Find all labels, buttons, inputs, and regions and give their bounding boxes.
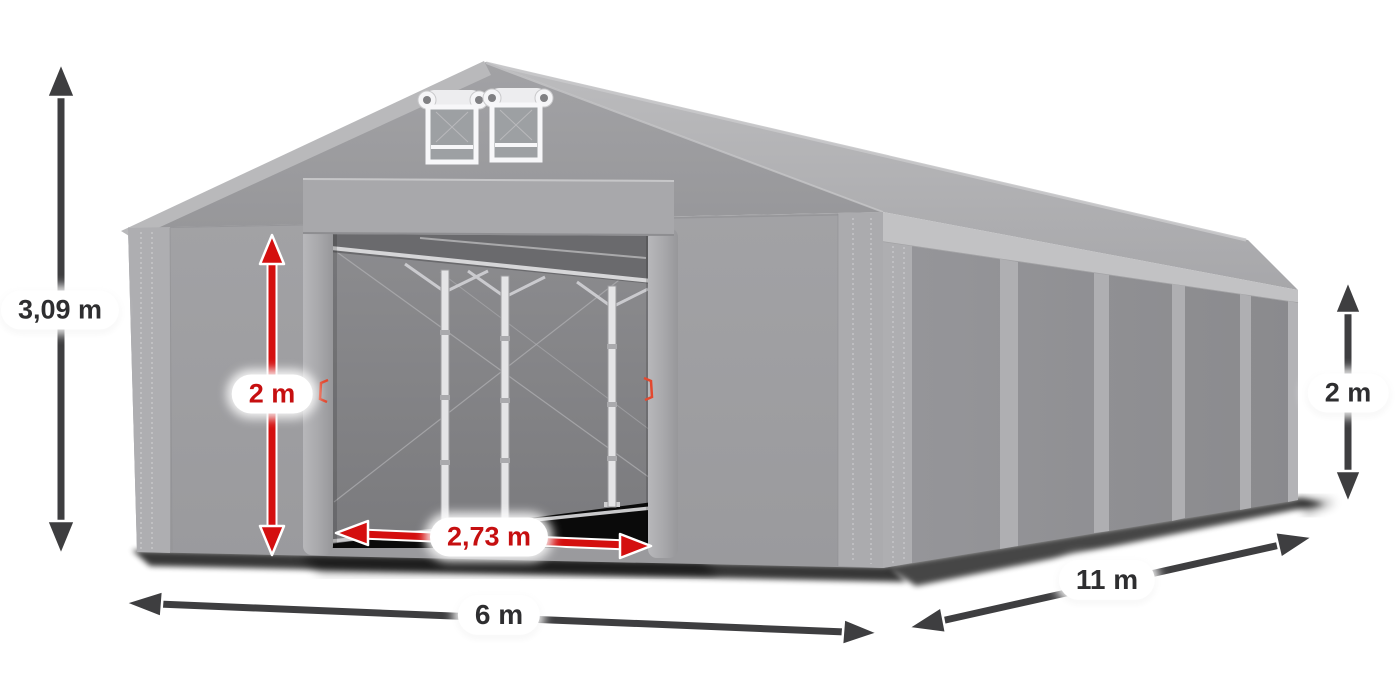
tent-dimension-illustration: 3,09 m 2 m 2,73 m 6 m 11 m 2 m [0, 0, 1400, 700]
entrance-opening [330, 234, 653, 548]
dimension-side-length: 11 m [1059, 560, 1155, 600]
vent-right [483, 88, 553, 160]
dimension-front-width: 6 m [458, 595, 540, 635]
dimension-entrance-width: 2,73 m [430, 517, 548, 556]
dimension-total-height: 3,09 m [1, 290, 119, 329]
entrance-header [303, 178, 674, 236]
dimension-side-height: 2 m [1308, 373, 1389, 412]
vent-left [418, 90, 488, 162]
tent-drawing [0, 0, 1400, 700]
dimension-entrance-height: 2 m [232, 374, 313, 413]
front-left-corner-cover [128, 227, 170, 553]
front-right-corner-cover [838, 212, 883, 568]
